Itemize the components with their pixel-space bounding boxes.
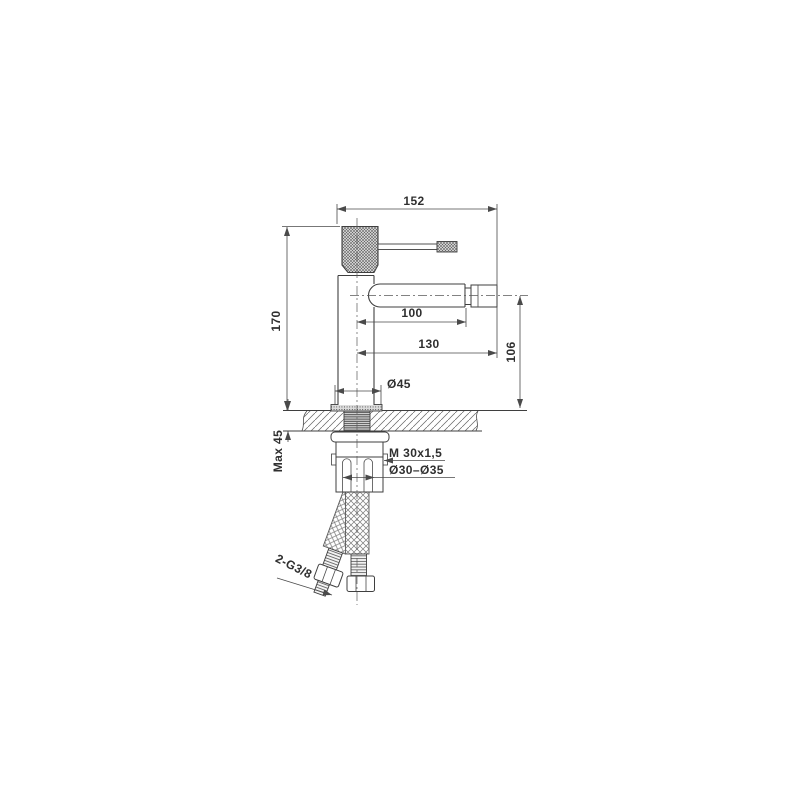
dim-dia45-label: Ø45: [387, 377, 411, 391]
label-mounting-thread: M 30x1,5: [384, 446, 445, 461]
handle-knob: [342, 227, 378, 273]
dim-152-label: 152: [403, 194, 424, 208]
base-flange: [331, 405, 382, 412]
dim-overall-reach: 130: [357, 337, 497, 353]
hose-connection-label: 2-G3/8: [273, 551, 314, 581]
spout: [369, 284, 465, 307]
aerator-ring: [465, 288, 471, 305]
hole-range-label: Ø30–Ø35: [389, 463, 444, 477]
faucet-technical-drawing: 152 170 100 130 106 Ø45 Max 45 M 30x1,5 …: [0, 0, 800, 800]
mounting-nut: [332, 442, 388, 492]
aerator: [465, 285, 497, 307]
dim-170-label: 170: [269, 310, 283, 331]
dim-130-label: 130: [418, 337, 439, 351]
lever-knurled-tip: [437, 242, 457, 253]
dim-spout-height: 106: [504, 296, 520, 408]
mounting-washer: [331, 432, 389, 442]
hose-thread-collar: [351, 554, 367, 576]
dim-106-label: 106: [504, 341, 518, 362]
supply-hose-straight: [346, 491, 375, 592]
dim-max45-label: Max 45: [271, 430, 285, 472]
technical-drawing-page: 152 170 100 130 106 Ø45 Max 45 M 30x1,5 …: [0, 0, 800, 800]
dim-overall-height: 170: [269, 227, 340, 411]
hose-hex-nut: [347, 576, 375, 592]
dim-100-label: 100: [401, 306, 422, 320]
countertop-section: [283, 411, 527, 432]
lever-rod: [378, 244, 437, 250]
handle-lever: [378, 242, 457, 253]
aerator-tip: [471, 285, 497, 307]
thread-spec-label: M 30x1,5: [389, 446, 442, 460]
